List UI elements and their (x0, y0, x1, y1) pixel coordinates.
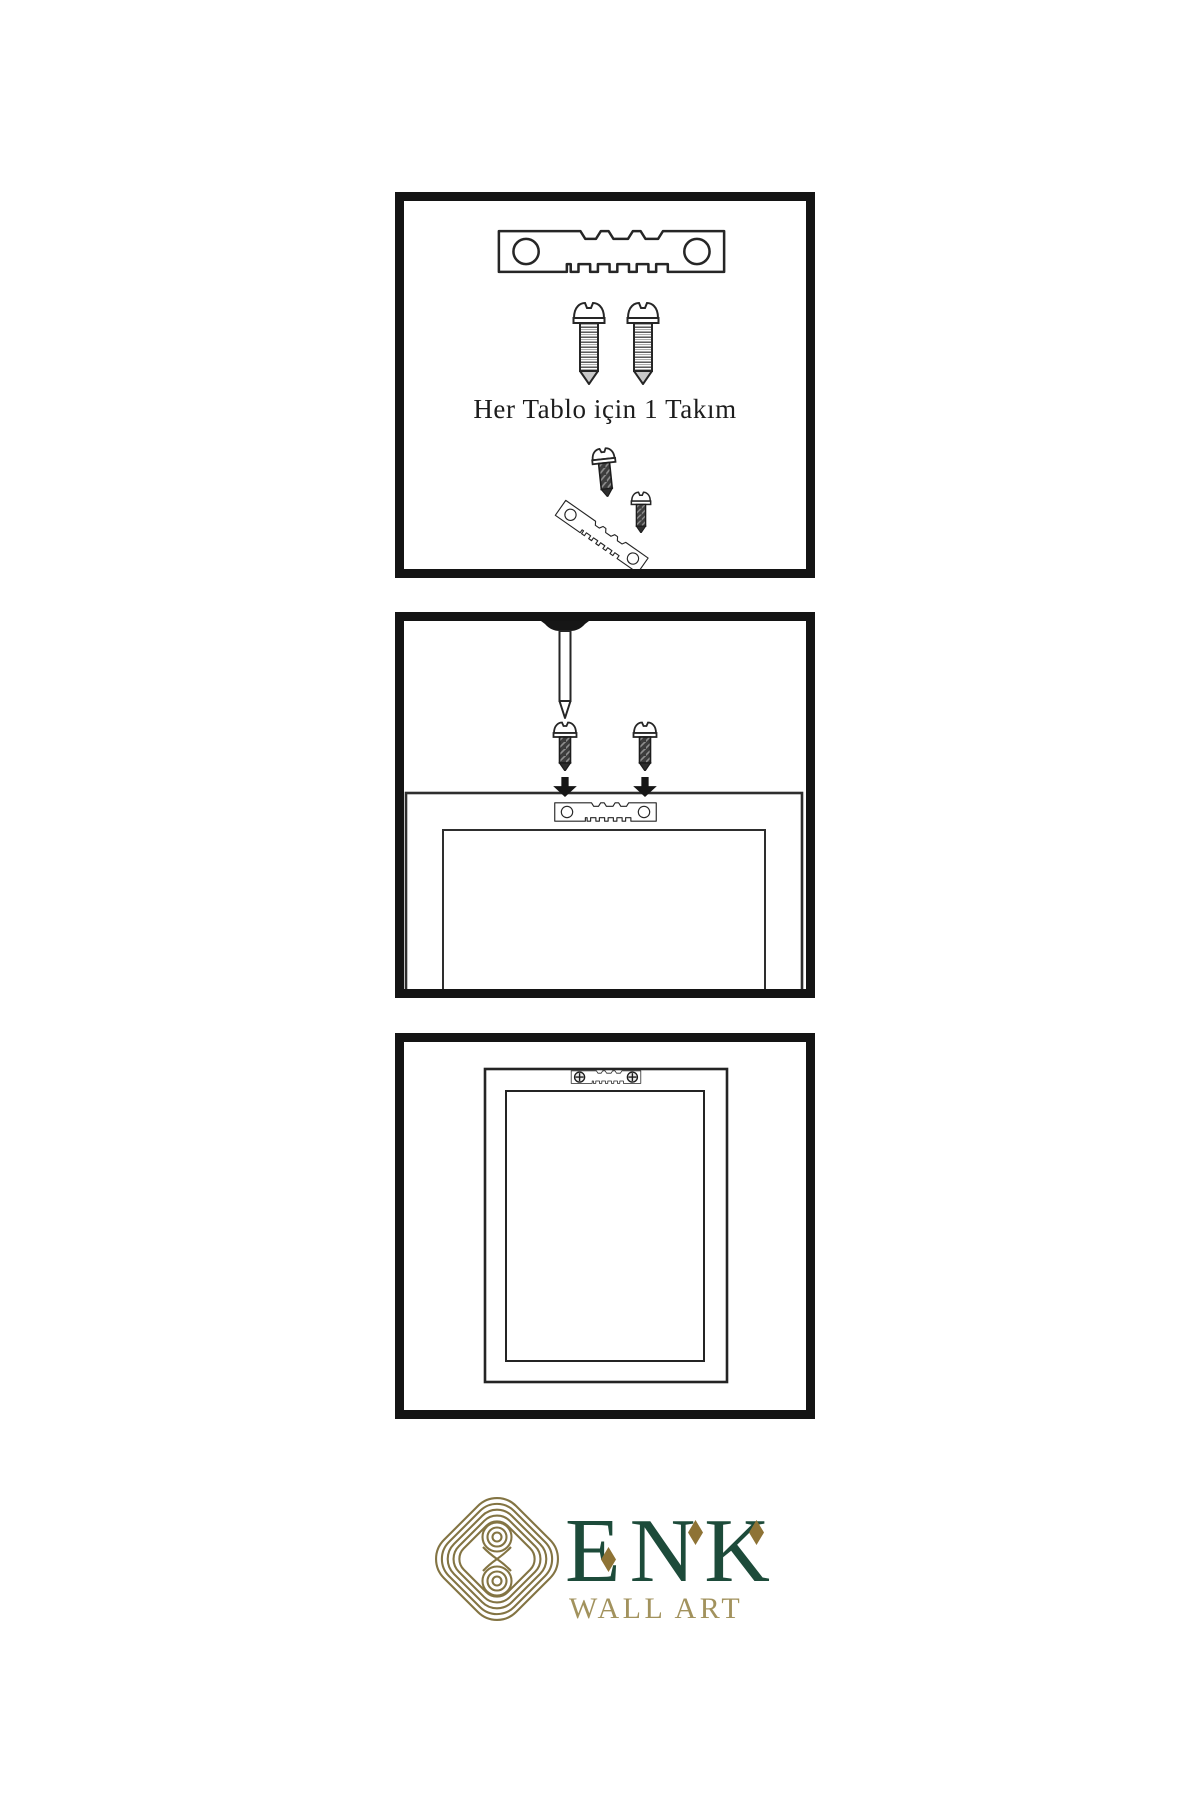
mounted-frame-icon (485, 1069, 727, 1382)
instruction-sheet: Her Tablo için 1 Takım (0, 0, 1200, 1800)
sawtooth-hanger-icon (499, 231, 724, 272)
screw-icon (628, 303, 659, 384)
step-1-panel: Her Tablo için 1 Takım (395, 192, 815, 578)
sawtooth-hanger-icon (555, 803, 657, 821)
mounted-frame-illustration (404, 1042, 806, 1410)
nail-icon (541, 621, 589, 718)
set-per-frame-caption: Her Tablo için 1 Takım (404, 394, 806, 425)
hardware-set-illustration (404, 201, 806, 569)
step-3-panel (395, 1033, 815, 1419)
brand-tagline: WALL ART (569, 1594, 743, 1624)
screw-into-hanger-icon (555, 447, 650, 569)
sawtooth-hanger-with-screws-icon (571, 1071, 641, 1084)
knot-logo-icon (432, 1489, 562, 1629)
brand-name: ENK (565, 1505, 779, 1596)
brand-logo: ENK WALL ART (432, 1487, 792, 1637)
mounting-illustration (404, 621, 806, 989)
frame-back-with-hanger-icon (406, 793, 802, 989)
screw-icon (554, 723, 577, 772)
step-2-panel (395, 612, 815, 998)
screw-icon (574, 303, 605, 384)
screw-icon (634, 723, 657, 772)
